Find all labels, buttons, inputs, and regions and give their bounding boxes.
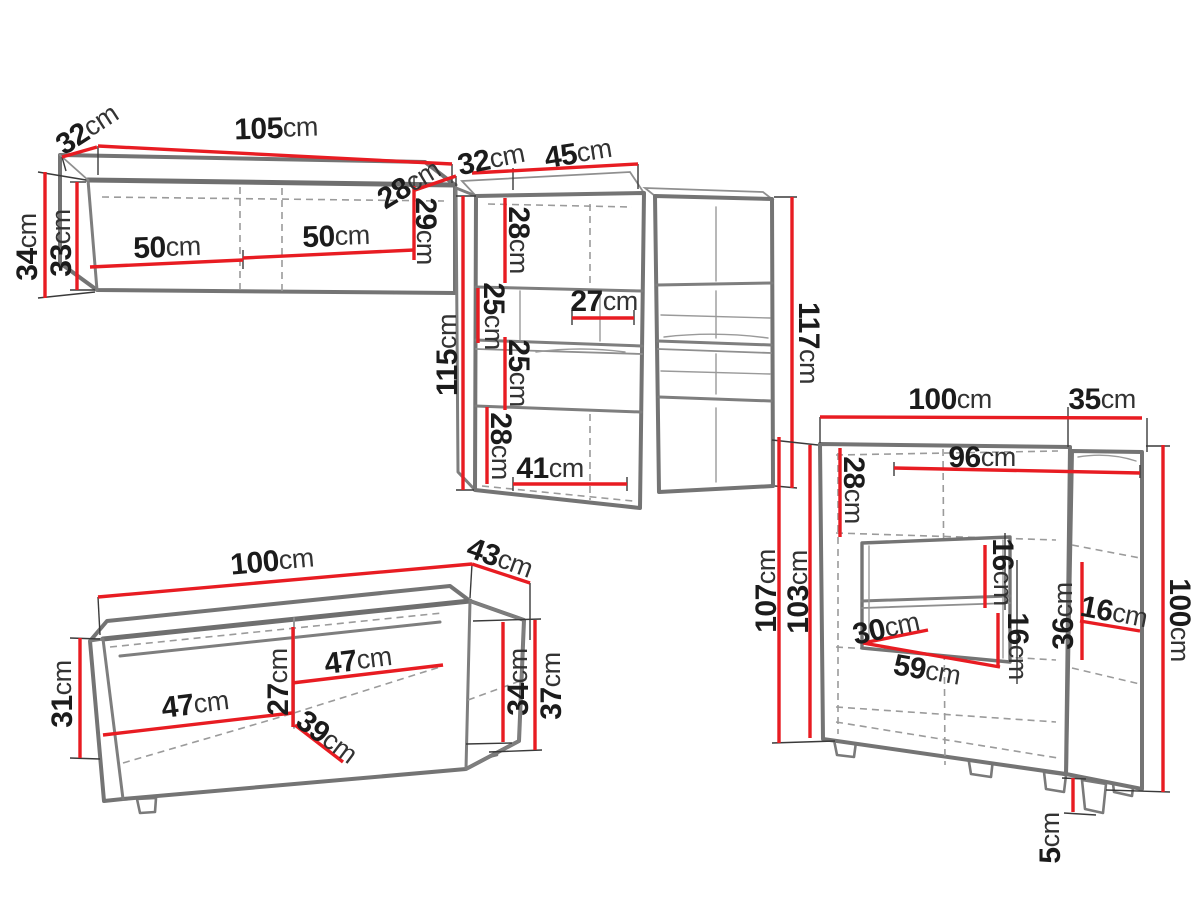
dim-tv-stand-height-right: 37cm [535, 652, 568, 719]
dim-wall-shelf-height: 34cm [11, 213, 44, 280]
dim-cabinet-left-bottom-width: 41cm [516, 452, 583, 485]
dim-tv-stand-inner-height: 27cm [262, 648, 295, 715]
diagram-canvas: 32cm 105cm 34cm 33cm 50cm 50cm 28cm 29cm… [0, 0, 1200, 900]
dim-sideboard-width: 100cm [908, 383, 992, 416]
dim-sideboard-inner-width: 96cm [948, 441, 1015, 474]
dim-tv-stand-inner-height-right: 34cm [502, 648, 535, 715]
dim-cabinet-left-width: 45cm [542, 131, 614, 174]
dim-sideboard-niche-shelf-lower: 16cm [1002, 612, 1035, 679]
dim-tv-stand-height-left: 31cm [46, 660, 79, 727]
dim-sideboard-feet: 5cm [1034, 812, 1067, 863]
dim-wall-shelf-width: 105cm [234, 110, 319, 146]
dim-sideboard-height-right: 100cm [1164, 578, 1197, 662]
dim-wall-shelf-door-right: 50cm [302, 218, 370, 253]
dim-sideboard-depth: 35cm [1068, 383, 1135, 416]
dim-sideboard-section-top: 28cm [838, 456, 871, 523]
dim-cabinet-left-height: 115cm [431, 314, 464, 396]
dim-sideboard-height-inner: 103cm [782, 550, 815, 634]
wall-shelf-drawing [38, 146, 456, 298]
dim-tv-stand-depth: 43cm [463, 531, 538, 585]
dim-wall-shelf-height-inner: 33cm [45, 209, 78, 276]
dim-cabinet-left-section-top: 28cm [503, 206, 536, 273]
dim-cabinet-left-section-bottom: 28cm [485, 412, 518, 479]
dim-cabinet-left-depth: 32cm [455, 136, 527, 181]
furniture-dimension-diagram: 32cm 105cm 34cm 33cm 50cm 50cm 28cm 29cm… [0, 0, 1200, 900]
tv-stand-drawing [70, 564, 542, 813]
dim-tv-stand-width: 100cm [229, 541, 315, 581]
dim-wall-shelf-height-right: 29cm [410, 197, 443, 264]
dim-sideboard-height: 107cm [750, 549, 783, 633]
tv-stand-foot-left [137, 798, 156, 813]
dim-cabinet-left-inner-width: 27cm [570, 285, 637, 318]
cabinet-right-drawing [645, 188, 797, 492]
dim-cabinet-left-section-lower-mid: 25cm [503, 339, 536, 406]
dim-wall-shelf-door-left: 50cm [133, 229, 201, 264]
dim-cabinet-right-height: 117cm [793, 302, 826, 384]
dim-sideboard-niche-height: 36cm [1047, 582, 1080, 649]
dim-sideboard-niche-shelf-upper: 16cm [987, 538, 1020, 605]
sideboard-foot-4 [1082, 780, 1106, 813]
